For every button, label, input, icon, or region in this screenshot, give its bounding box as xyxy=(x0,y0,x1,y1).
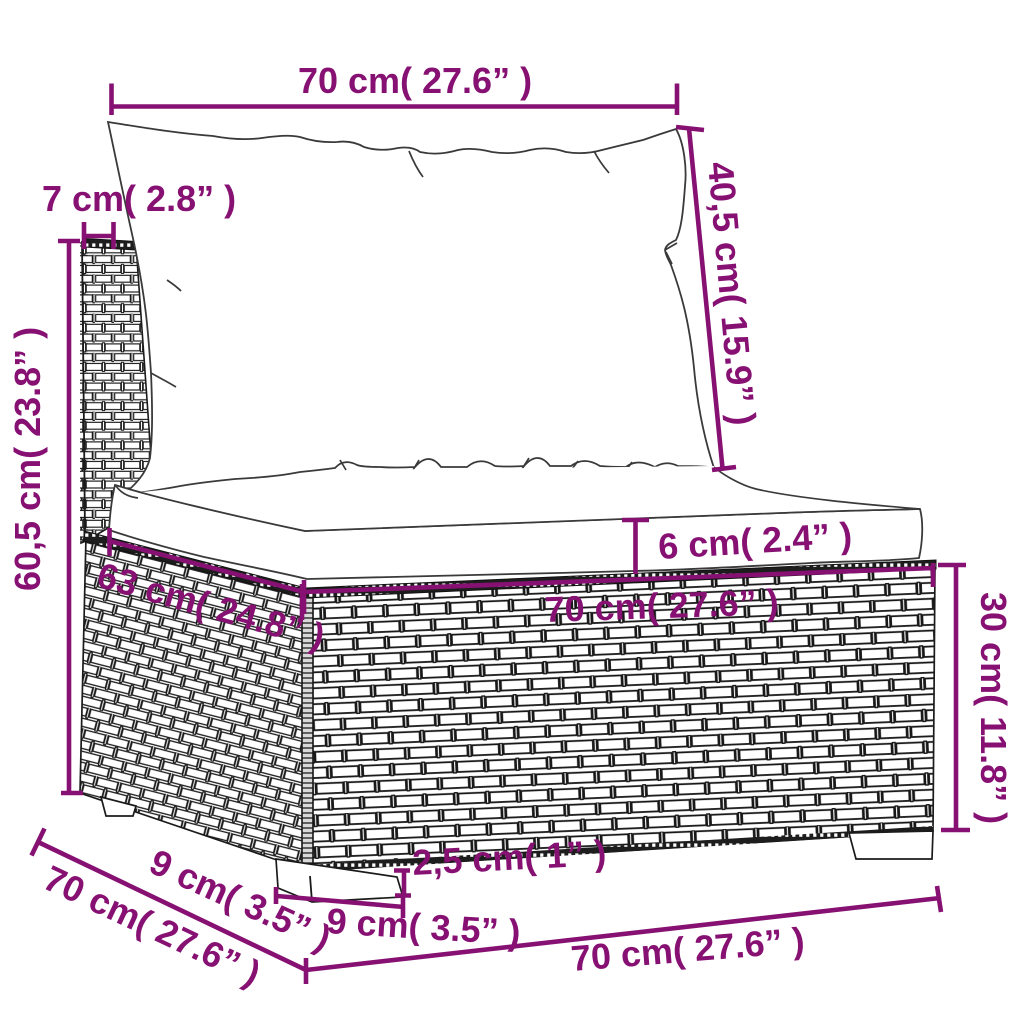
svg-text:7 cm( 2.8” ): 7 cm( 2.8” ) xyxy=(42,178,236,219)
svg-text:70 cm( 27.6” ): 70 cm( 27.6” ) xyxy=(544,581,779,630)
svg-text:30 cm( 11.8” ): 30 cm( 11.8” ) xyxy=(973,592,1014,824)
svg-text:70 cm( 27.6” ): 70 cm( 27.6” ) xyxy=(298,60,532,101)
svg-text:60,5 cm( 23.8” ): 60,5 cm( 23.8” ) xyxy=(7,327,48,591)
